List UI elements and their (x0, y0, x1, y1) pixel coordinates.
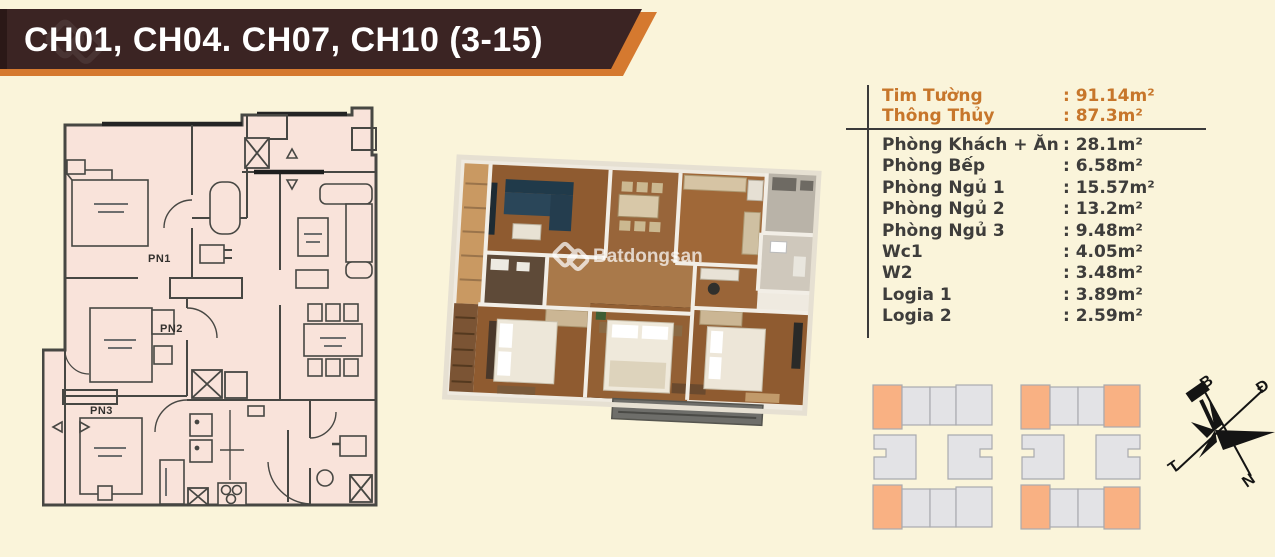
floorplan-2d: PN1 PN2 PN3 (42, 100, 384, 528)
room-label-pn1: PN1 (148, 253, 171, 265)
area-row-label: W2 (882, 263, 1063, 284)
area-row-value: : 15.57m² (1063, 178, 1155, 199)
area-row: Logia 2 : 2.59m² (882, 306, 1155, 327)
area-row-value: : 4.05m² (1063, 242, 1143, 263)
area-row: Phòng Ngủ 3 : 9.48m² (882, 221, 1155, 242)
area-row: Phòng Bếp : 6.58m² (882, 156, 1155, 177)
area-room-rows: Phòng Khách + Ăn : 28.1m² Phòng Bếp : 6.… (882, 135, 1155, 328)
key-plan-block-2 (1021, 385, 1140, 529)
compass-rose: B Đ T N (1163, 372, 1275, 497)
area-row-value: : 3.89m² (1063, 285, 1143, 306)
compass-east: Đ (1253, 377, 1272, 398)
area-row-value: : 6.58m² (1063, 156, 1143, 177)
floorplan-3d: Batdongsan (415, 128, 867, 458)
area-row-label: Phòng Ngủ 3 (882, 221, 1063, 242)
room-label-pn2: PN2 (160, 323, 183, 335)
area-row-value: : 91.14m² (1063, 86, 1155, 106)
area-row-label: Phòng Ngủ 1 (882, 178, 1063, 199)
area-row-value: : 3.48m² (1063, 263, 1143, 284)
area-row: Logia 1 : 3.89m² (882, 285, 1155, 306)
svg-text:Batdongsan: Batdongsan (593, 246, 703, 267)
area-row-label: Thông Thủy (882, 106, 1063, 126)
area-row-label: Phòng Khách + Ăn (882, 135, 1063, 156)
area-row: Wc1 : 4.05m² (882, 242, 1155, 263)
area-row: Thông Thủy : 87.3m² (882, 106, 1155, 126)
area-summary-rows: Tim Tường : 91.14m² Thông Thủy : 87.3m² (882, 86, 1155, 126)
banner-left-edge (0, 9, 7, 69)
key-plan-block-1 (873, 385, 992, 529)
area-row-value: : 2.59m² (1063, 306, 1143, 327)
page-title: CH01, CH04. CH07, CH10 (3-15) (24, 21, 543, 60)
area-row-value: : 9.48m² (1063, 221, 1143, 242)
area-row-label: Phòng Bếp (882, 156, 1063, 177)
title-banner: CH01, CH04. CH07, CH10 (3-15) (0, 0, 700, 90)
area-row-label: Wc1 (882, 242, 1063, 263)
area-row: Phòng Ngủ 2 : 13.2m² (882, 199, 1155, 220)
area-row-value: : 87.3m² (1063, 106, 1143, 126)
compass-south: N (1239, 471, 1258, 492)
area-row-label: Logia 2 (882, 306, 1063, 327)
area-row: Phòng Ngủ 1 : 15.57m² (882, 178, 1155, 199)
table-vertical-rule (867, 85, 869, 338)
area-row-label: Phòng Ngủ 2 (882, 199, 1063, 220)
area-row-label: Tim Tường (882, 86, 1063, 106)
area-row-value: : 13.2m² (1063, 199, 1143, 220)
area-row: W2 : 3.48m² (882, 263, 1155, 284)
area-row: Tim Tường : 91.14m² (882, 86, 1155, 106)
area-row: Phòng Khách + Ăn : 28.1m² (882, 135, 1155, 156)
dining-set (304, 304, 362, 376)
table-horizontal-rule (846, 128, 1206, 130)
room-label-pn3: PN3 (90, 405, 113, 417)
area-row-value: : 28.1m² (1063, 135, 1143, 156)
building-key-plan (872, 383, 1164, 533)
area-row-label: Logia 1 (882, 285, 1063, 306)
